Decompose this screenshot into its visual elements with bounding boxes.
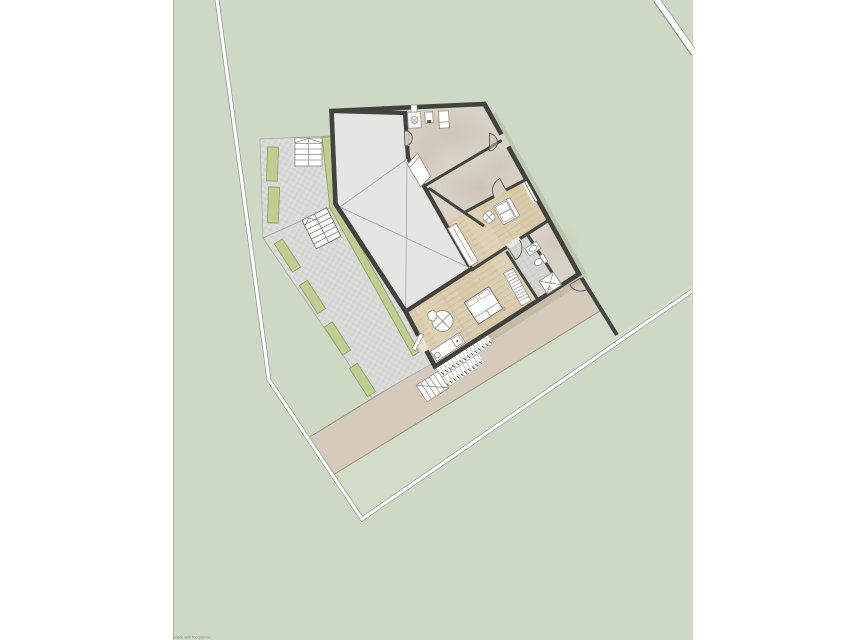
svg-text:made with floorplanner: made with floorplanner bbox=[175, 636, 212, 640]
